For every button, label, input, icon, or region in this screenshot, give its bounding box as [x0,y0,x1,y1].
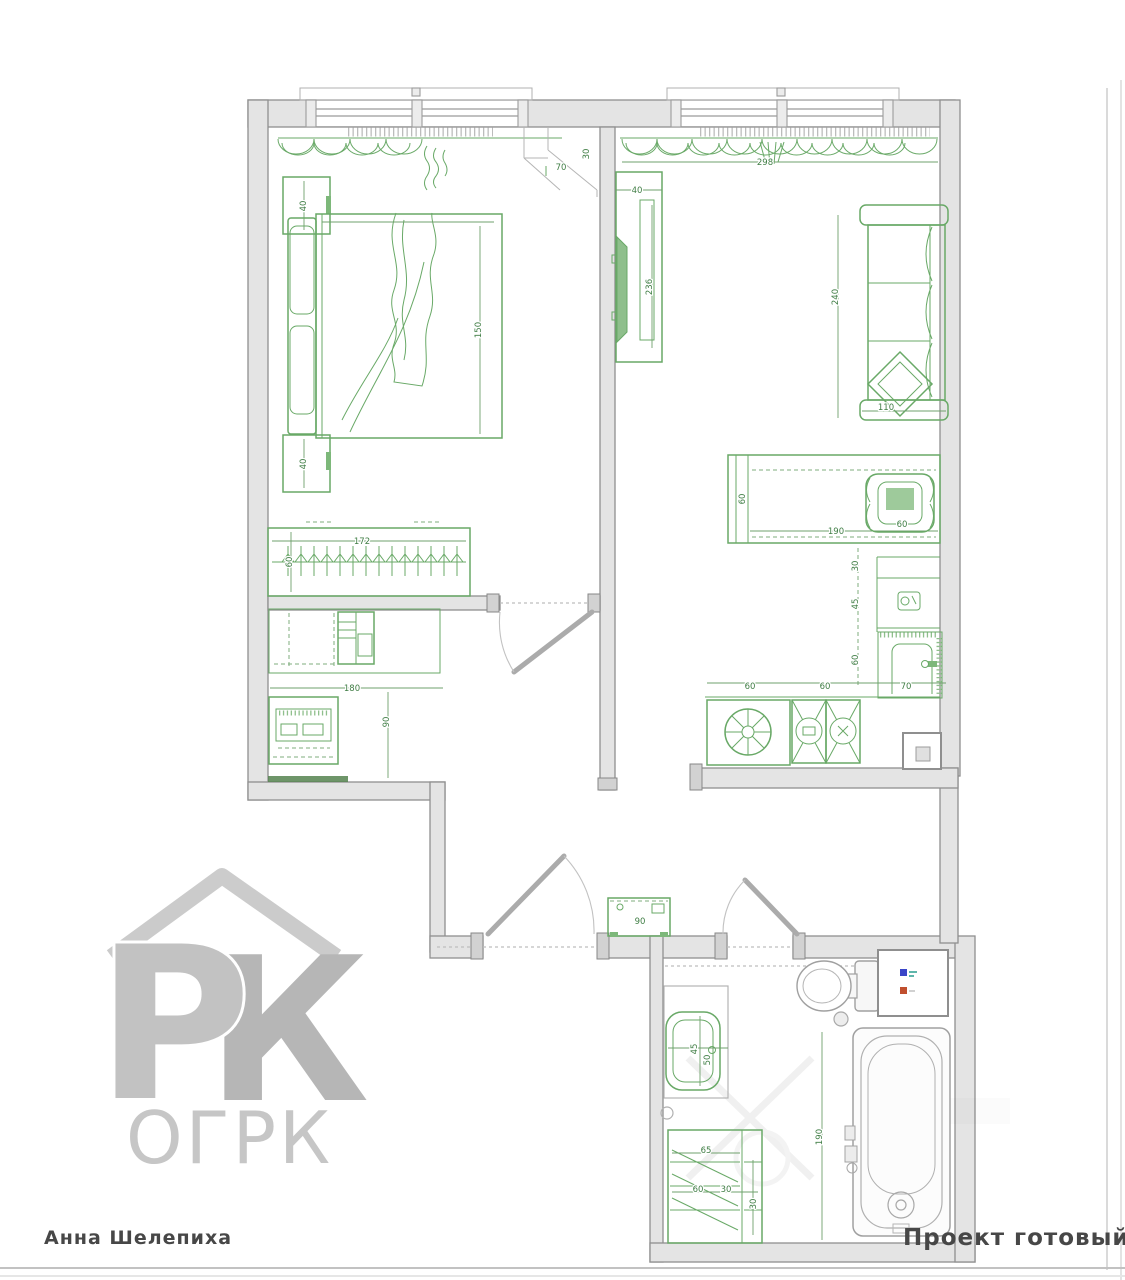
hall-shelf-unit [338,612,374,664]
dim-label: 60 [820,682,831,692]
bathroom-door [723,880,797,934]
cold-water-icon [900,969,907,976]
bedroom-door [487,594,600,672]
dim-label: 65 [701,1146,712,1156]
dim-label: 172 [354,537,370,547]
electrical-box [903,733,941,769]
entry-door [488,856,594,934]
fridge-icon [826,700,860,763]
dim-label: 60 [897,520,908,530]
kitchen-counter-right [858,548,942,698]
tv-unit [612,172,662,362]
window-living [667,88,899,127]
dim-label: 180 [344,684,360,694]
author-caption: Анна Шелепиха [44,1227,232,1249]
dim-label: 60 [745,682,756,692]
dim-label: 45 [851,599,861,610]
dim-label: 60 [285,557,295,568]
water-riser-box [878,950,948,1016]
bedroom [268,127,600,672]
dim-label: 40 [299,201,309,212]
sink-icon [898,592,920,610]
dim-label: 60 [693,1185,704,1195]
dim-label: 60 [738,494,748,505]
dim-label: 190 [815,1129,825,1145]
floor-plan-svg: 40 70 30 150 172 60 40 180 90 298 40 236… [0,0,1125,1280]
dim-label: 30 [721,1185,732,1195]
dim-label: 45 [690,1044,700,1055]
oven-icon [792,700,826,763]
dim-label: 236 [645,279,655,295]
logo-org-text: ОГРК [126,1096,333,1180]
dim-label: 50 [703,1055,713,1066]
dim-label: 30 [582,149,592,160]
floor-plan-page: 40 70 30 150 172 60 40 180 90 298 40 236… [0,0,1125,1280]
dim-label: 40 [632,186,643,196]
dim-label: 30 [749,1199,759,1210]
sofa [838,205,948,420]
dim-label: 40 [299,459,309,470]
window-bedroom [300,88,532,127]
dim-label: 60 [851,655,861,666]
status-caption: Проект готовый [903,1225,1125,1251]
dimension-labels: 40 70 30 150 172 60 40 180 90 298 40 236… [285,149,911,1210]
dim-label: 150 [474,322,484,338]
curtain-icon [278,138,562,190]
dim-label: 70 [901,682,912,692]
bed [288,213,502,438]
wardrobe [268,522,470,596]
dim-label: 298 [757,158,773,168]
dim-label: 70 [556,163,567,173]
washing-machine-icon [725,709,771,755]
hallway [268,609,443,782]
dim-label: 90 [635,917,646,927]
tv-icon [617,237,627,342]
watermark-logo: К Р ОГРК [96,876,369,1180]
hot-water-icon [900,987,907,994]
faucet-icon [922,661,938,668]
dim-label: 240 [831,289,841,305]
living-room [612,132,948,769]
dim-label: 30 [851,561,861,572]
toilet-icon [797,961,879,1026]
dim-label: 110 [878,403,894,413]
dim-label: 190 [828,527,844,537]
bathtub-icon [845,1028,950,1236]
bath-shelf-unit [668,1130,762,1243]
hall-dresser [268,697,348,782]
dim-label: 90 [382,717,392,728]
